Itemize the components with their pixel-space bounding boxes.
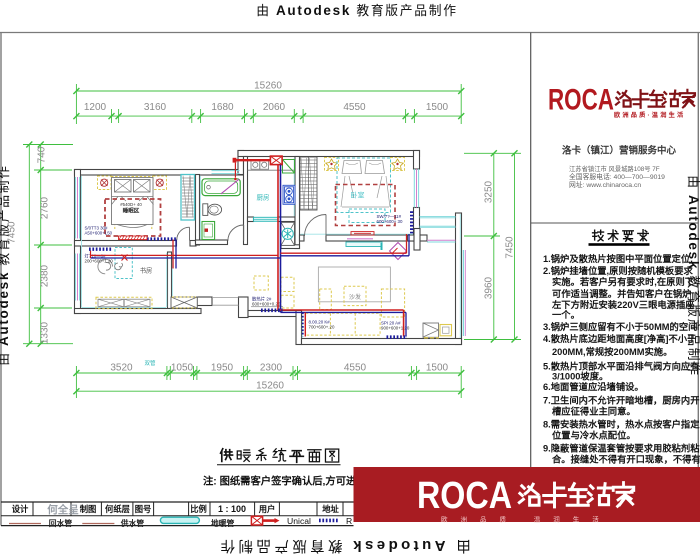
svg-text:4.散热片底边距地面高度[净高]不小于: 4.散热片底边距地面高度[净高]不小于 bbox=[543, 333, 696, 344]
svg-text:网址: www.chinaroca.cn: 网址: www.chinaroca.cn bbox=[569, 180, 641, 189]
svg-text:回水管: 回水管 bbox=[49, 518, 73, 528]
svg-text:设计: 设计 bbox=[12, 504, 29, 514]
svg-text:双管: 双管 bbox=[144, 359, 156, 367]
svg-text:沙发: 沙发 bbox=[349, 293, 361, 301]
svg-text:8.需安装热水管时，热水点按客户指定: 8.需安装热水管时，热水点按客户指定 bbox=[543, 419, 700, 430]
svg-text:地暖管: 地暖管 bbox=[211, 518, 235, 528]
svg-text:15260: 15260 bbox=[256, 381, 284, 392]
svg-text:4550: 4550 bbox=[343, 102, 366, 113]
svg-text:供水管: 供水管 bbox=[120, 518, 145, 528]
svg-text:全国客服电话: 400—700—9019: 全国客服电话: 400—700—9019 bbox=[569, 172, 665, 181]
svg-text:1050: 1050 bbox=[171, 363, 194, 374]
svg-text:ROCA: ROCA bbox=[548, 84, 614, 117]
svg-text:15260: 15260 bbox=[254, 81, 282, 92]
svg-text:地址: 地址 bbox=[322, 504, 339, 514]
svg-text:制图: 制图 bbox=[80, 504, 97, 514]
svg-text:600+600+0.25: 600+600+0.25 bbox=[252, 302, 281, 307]
svg-text:一个。: 一个。 bbox=[552, 309, 580, 320]
svg-text:由 Autodesk 教育版产品制作: 由 Autodesk 教育版产品制作 bbox=[0, 164, 11, 366]
svg-text:R: R bbox=[346, 516, 352, 526]
svg-text:3520: 3520 bbox=[110, 363, 133, 374]
svg-text:可作适当调整。并告知客户在锅炉: 可作适当调整。并告知客户在锅炉 bbox=[552, 288, 691, 299]
svg-text:740: 740 bbox=[37, 146, 48, 163]
svg-text:1500: 1500 bbox=[426, 102, 449, 113]
svg-text:2760: 2760 bbox=[40, 196, 51, 219]
svg-text:4550: 4550 bbox=[344, 363, 367, 374]
svg-text:2.锅炉挂墙位置,原则按随机模板要求: 2.锅炉挂墙位置,原则按随机模板要求 bbox=[543, 265, 693, 276]
svg-text:6.地面管道应沿墙铺设。: 6.地面管道应沿墙铺设。 bbox=[543, 381, 644, 392]
svg-text:欧洲品质 温润生活: 欧洲品质 温润生活 bbox=[441, 515, 612, 524]
svg-text:2300: 2300 bbox=[260, 363, 283, 374]
svg-text:由 Autodesk 教育版产品制作: 由 Autodesk 教育版产品制作 bbox=[217, 537, 471, 554]
svg-text:1200: 1200 bbox=[84, 102, 107, 113]
svg-text:睡眠区: 睡眠区 bbox=[123, 207, 140, 215]
svg-text:3160: 3160 bbox=[144, 102, 167, 113]
svg-text:1680: 1680 bbox=[211, 102, 234, 113]
svg-text:1.锅炉及散热片按图中平面位置定位.: 1.锅炉及散热片按图中平面位置定位. bbox=[543, 253, 693, 264]
svg-text:厨房: 厨房 bbox=[257, 193, 270, 202]
svg-text:9.隐蔽管道保温套管按要求用胶粘剂粘: 9.隐蔽管道保温套管按要求用胶粘剂粘 bbox=[543, 443, 700, 454]
svg-text:何全呈: 何全呈 bbox=[47, 503, 79, 516]
svg-text:5.散热片顶部水平面沿排气阀方向应有: 5.散热片顶部水平面沿排气阀方向应有 bbox=[543, 361, 700, 372]
svg-text:7450: 7450 bbox=[505, 236, 516, 259]
svg-text:江苏省镇江市 风景城路108号 7F: 江苏省镇江市 风景城路108号 7F bbox=[569, 164, 660, 173]
svg-text:600+600+ 30: 600+600+ 30 bbox=[377, 219, 403, 224]
svg-text:1330: 1330 bbox=[40, 321, 51, 344]
svg-text:#540D+ 40: #540D+ 40 bbox=[120, 202, 142, 207]
svg-text:洛卡（镇江）营销服务中心: 洛卡（镇江）营销服务中心 bbox=[562, 145, 677, 157]
svg-text:2380: 2380 bbox=[40, 264, 51, 287]
svg-text:3960: 3960 bbox=[484, 276, 495, 299]
svg-text:实施。若客户另有要求时,在原则下: 实施。若客户另有要求时,在原则下 bbox=[552, 276, 694, 287]
svg-text:合。接缝处不得有开口现象，不得有: 合。接缝处不得有开口现象，不得有 bbox=[552, 454, 700, 465]
svg-text:200MM,常规按200MM实施。: 200MM,常规按200MM实施。 bbox=[552, 346, 672, 357]
svg-text:7.卫生间内不允许开暗地槽，厨房内开: 7.卫生间内不允许开暗地槽，厨房内开 bbox=[543, 395, 700, 406]
svg-text:左下方附近安装220V三眼电源插座: 左下方附近安装220V三眼电源插座 bbox=[551, 299, 695, 310]
svg-text:2060: 2060 bbox=[263, 102, 286, 113]
svg-text:欧洲品质·温润生活: 欧洲品质·温润生活 bbox=[614, 111, 685, 119]
svg-text:槽应征得业主同意。: 槽应征得业主同意。 bbox=[552, 406, 636, 417]
svg-text:由 Autodesk 教育版产品制作: 由 Autodesk 教育版产品制作 bbox=[686, 175, 700, 377]
svg-text:ROCA: ROCA bbox=[417, 475, 512, 517]
svg-text:Unical: Unical bbox=[287, 516, 311, 526]
svg-text:1950: 1950 bbox=[211, 363, 234, 374]
svg-text:3/1000坡度。: 3/1000坡度。 bbox=[552, 371, 608, 382]
svg-text:图号: 图号 bbox=[135, 504, 152, 514]
svg-text:7450: 7450 bbox=[7, 221, 18, 244]
svg-text:700+600+.20: 700+600+.20 bbox=[309, 325, 335, 330]
svg-text:由 Autodesk 教育版产品制作: 由 Autodesk 教育版产品制作 bbox=[256, 3, 458, 18]
svg-text:比例: 比例 bbox=[190, 504, 207, 514]
svg-text:3.锅炉三侧应留有不小于50MM的空间: 3.锅炉三侧应留有不小于50MM的空间 bbox=[543, 321, 697, 332]
svg-text:位置与冷水点配位。: 位置与冷水点配位。 bbox=[552, 430, 636, 441]
svg-text:3250: 3250 bbox=[484, 180, 495, 203]
svg-text:用户: 用户 bbox=[258, 504, 276, 514]
svg-text:A50+600+L50: A50+600+L50 bbox=[85, 230, 113, 235]
svg-text:1 : 100: 1 : 100 bbox=[218, 504, 246, 514]
svg-text:200+600+1.20: 200+600+1.20 bbox=[85, 258, 114, 263]
svg-text:1500: 1500 bbox=[426, 363, 449, 374]
svg-text:何纸层: 何纸层 bbox=[105, 504, 130, 514]
svg-text:书房: 书房 bbox=[140, 266, 153, 275]
svg-text:卧室: 卧室 bbox=[351, 191, 365, 200]
